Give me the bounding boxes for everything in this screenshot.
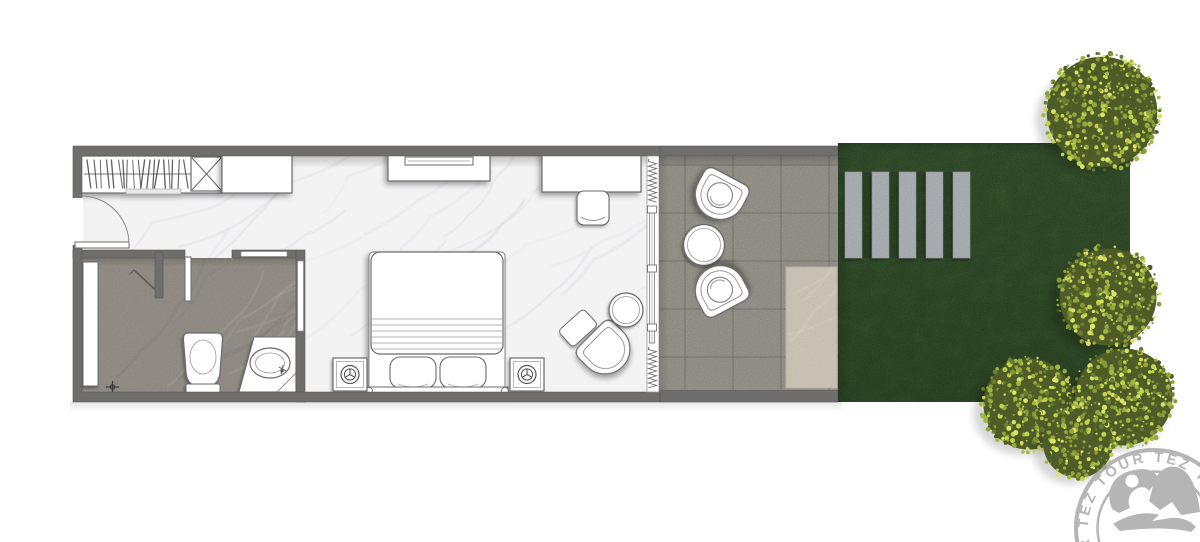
garden [838,51,1177,484]
side-table-icon [609,293,643,327]
desk-chair-icon [577,191,609,225]
wardrobe-icon [80,156,222,194]
mountain-sun-logo-icon [1109,467,1200,532]
duvet [371,252,503,354]
bathroom-window [241,252,287,257]
floorplan-image: TEZ TOUR TEZ TOUR TEZ TOUR TEZ TOUR [0,0,1200,542]
wardrobe-shelf [126,189,181,194]
table-lamp-icon [341,366,359,384]
nightstand-icon [333,358,367,391]
floorplan-svg: TEZ TOUR TEZ TOUR TEZ TOUR TEZ TOUR [0,0,1200,542]
bench-icon [83,262,98,386]
luggage-rack-icon [191,157,222,191]
bush-icon [1036,51,1163,173]
table-lamp-icon [518,366,536,384]
cabinet-icon [222,150,292,193]
coffee-table-icon [684,225,725,266]
pillow-icon [440,357,486,388]
bed-icon [365,252,508,395]
pillow-icon [390,357,436,388]
nightstand-icon [510,358,544,391]
glass-partition [298,261,304,331]
building-shadow [70,402,842,412]
toilet-icon [183,333,222,393]
entry-opening [72,198,84,245]
sliding-door-icon [647,156,659,392]
